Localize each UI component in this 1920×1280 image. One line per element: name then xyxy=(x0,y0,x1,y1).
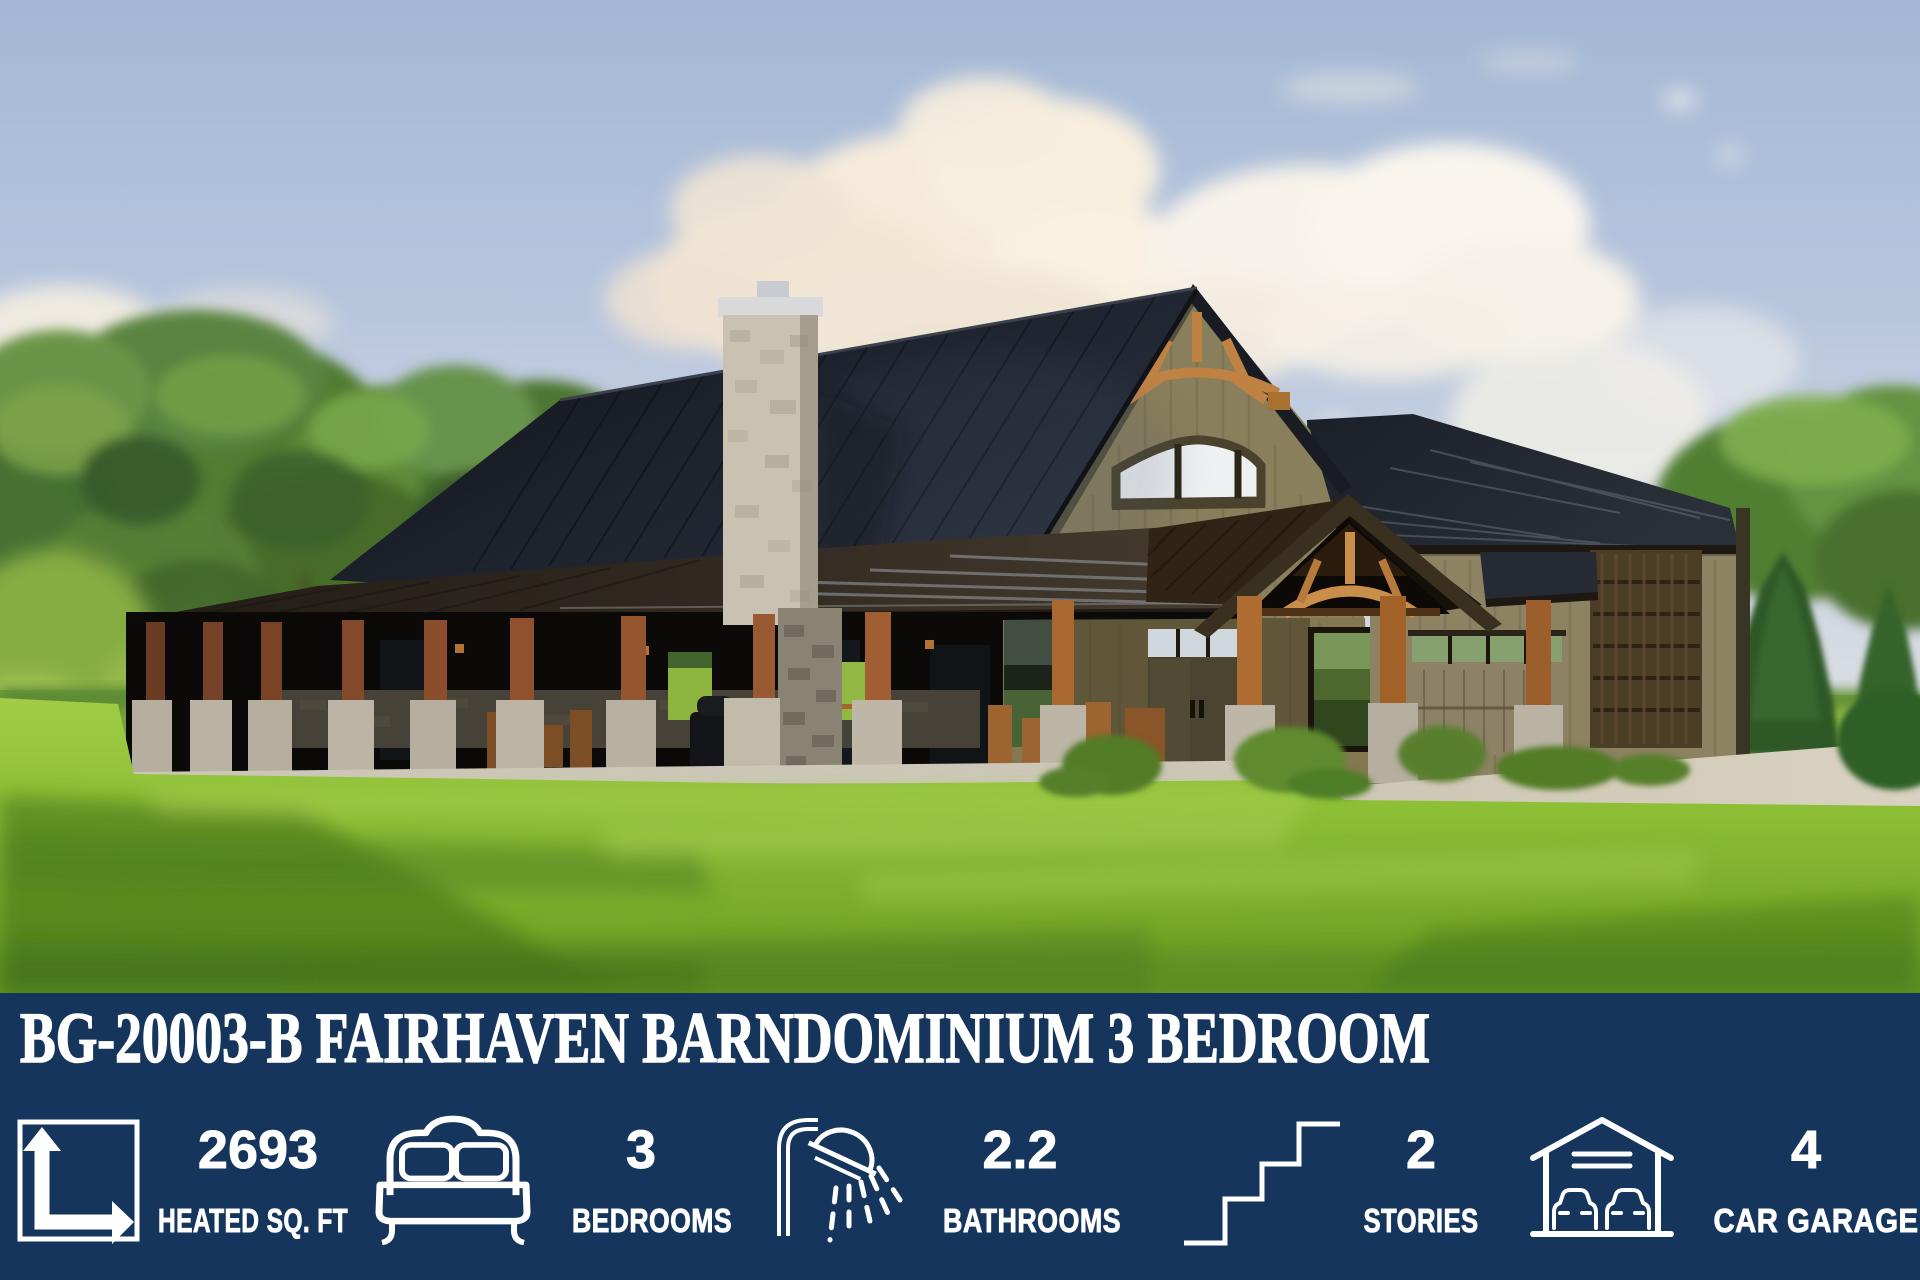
svg-text:STORIES: STORIES xyxy=(1364,1202,1479,1239)
svg-text:BATHROOMS: BATHROOMS xyxy=(943,1202,1121,1239)
svg-text:3: 3 xyxy=(626,1120,656,1180)
svg-text:2.2: 2.2 xyxy=(982,1120,1057,1180)
svg-text:BEDROOMS: BEDROOMS xyxy=(572,1202,732,1239)
svg-text:2: 2 xyxy=(1406,1120,1436,1180)
svg-text:2693: 2693 xyxy=(198,1120,318,1180)
svg-text:HEATED SQ. FT: HEATED SQ. FT xyxy=(158,1202,348,1239)
svg-text:CAR GARAGE: CAR GARAGE xyxy=(1714,1202,1919,1239)
svg-text:BG-20003-B FAIRHAVEN BARNDOMIN: BG-20003-B FAIRHAVEN BARNDOMINIUM 3 BEDR… xyxy=(20,998,1430,1078)
svg-text:4: 4 xyxy=(1791,1120,1821,1180)
